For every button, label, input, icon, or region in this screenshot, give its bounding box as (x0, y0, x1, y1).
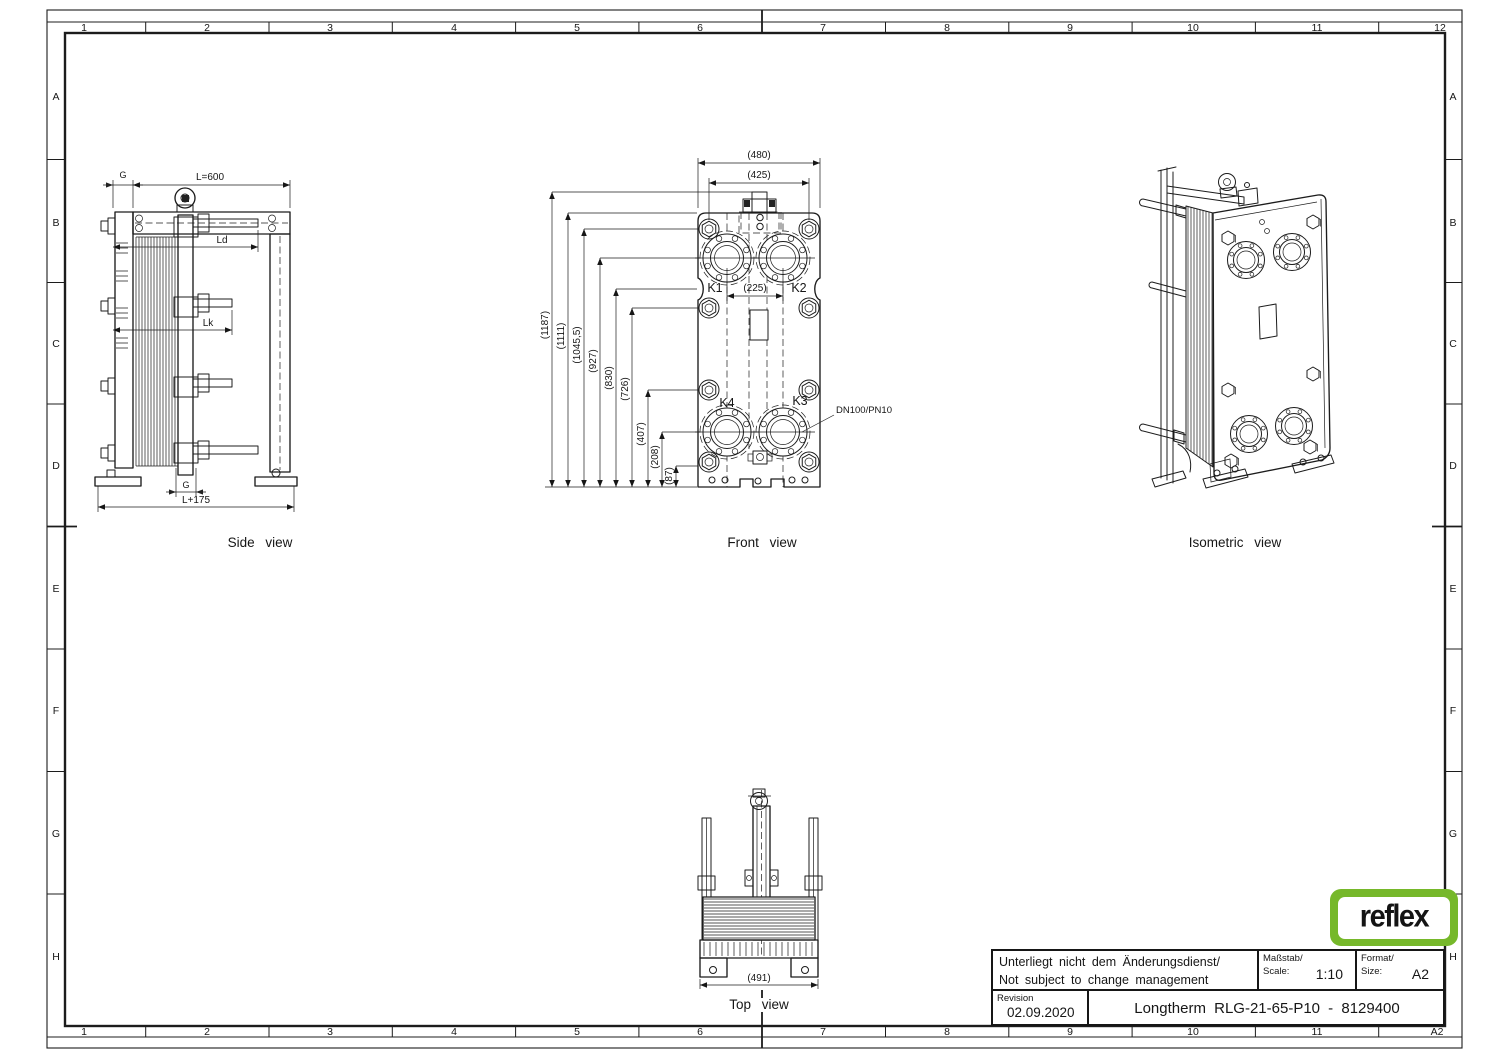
dim-label-726: (726) (620, 377, 631, 400)
top-view-dimensions: (491) (700, 973, 818, 989)
drawing-canvas: 1 2 3 4 5 6 7 8 9 10 11 12 1 2 3 4 5 6 7… (0, 0, 1500, 1060)
grid-col-label: 2 (204, 22, 210, 34)
format-label-de: Format/ (1357, 951, 1445, 964)
nozzle-spec-label: DN100/PN10 (836, 405, 892, 416)
sheet-border-frame (47, 10, 1462, 1048)
grid-col-label: 8 (944, 22, 950, 34)
dim-label-830: (830) (604, 366, 615, 389)
grid-col-label: 3 (327, 22, 333, 34)
reflex-logo-text: reflex (1360, 900, 1428, 936)
dim-label-lk: Lk (203, 318, 215, 329)
grid-col-label: 2 (204, 1026, 210, 1038)
isometric-view-drawing: Isometric view (1140, 167, 1335, 550)
grid-row-label: E (1449, 583, 1456, 595)
grid-row-label: B (52, 217, 59, 229)
dim-label-1111: (1111) (556, 323, 567, 350)
grid-row-label: A (52, 91, 59, 103)
dim-label-491: (491) (747, 973, 770, 984)
scale-value: 1:10 (1316, 966, 1343, 982)
dim-label-1187: (1187) (540, 311, 551, 339)
drawing-sheet: 1 2 3 4 5 6 7 8 9 10 11 12 1 2 3 4 5 6 7… (0, 0, 1500, 1060)
grid-row-label: B (1449, 217, 1456, 229)
grid-row-label: G (52, 828, 60, 840)
dim-label-overall: L+175 (182, 495, 211, 506)
dim-label-1045: (1045,5) (572, 326, 583, 363)
grid-row-label: G (1449, 828, 1457, 840)
grid-col-label: 10 (1187, 1026, 1199, 1038)
grid-col-label: 4 (451, 1026, 457, 1038)
grid-col-label: 8 (944, 1026, 950, 1038)
format-label-en: Size: (1357, 964, 1445, 977)
grid-col-label: A2 (1431, 1026, 1444, 1038)
side-view-dimensions: G L=600 Ld Lk G L+175 (98, 170, 294, 512)
grid-col-label: 6 (697, 1026, 703, 1038)
title-block-note: Unterliegt nicht dem Änderungsdienst/ No… (993, 951, 1259, 991)
title-block-revision-cell: Revision 02.09.2020 (993, 991, 1089, 1026)
side-view-drawing: G L=600 Ld Lk G L+175 Side view (95, 170, 297, 550)
grid-col-label: 3 (327, 1026, 333, 1038)
grid-col-label: 11 (1312, 1026, 1323, 1038)
format-value: A2 (1412, 966, 1429, 982)
grid-row-label: D (52, 460, 60, 472)
grid-col-label: 7 (820, 22, 826, 34)
grid-col-label: 9 (1067, 22, 1073, 34)
dim-label-87: (87) (664, 467, 675, 485)
dim-label-927: (927) (588, 349, 599, 372)
grid-col-label: 1 (81, 1026, 87, 1038)
grid-row-label: F (1450, 705, 1456, 717)
grid-col-label: 1 (81, 22, 87, 34)
title-block-format-cell: Format/ Size: A2 (1357, 951, 1445, 991)
front-view-drawing: K1 K2 K4 K3 DN100/PN10 (480) (425) (225) (540, 150, 892, 550)
grid-row-label: H (52, 951, 60, 963)
isometric-view-label: Isometric view (1189, 535, 1282, 550)
grid-row-label: F (53, 705, 59, 717)
title-block: Unterliegt nicht dem Änderungsdienst/ No… (991, 949, 1445, 1026)
dim-label-480: (480) (747, 150, 770, 161)
grid-row-label: C (52, 338, 60, 350)
reflex-logo-inner: reflex (1338, 897, 1450, 939)
grid-col-label: 6 (697, 22, 703, 34)
revision-label: Revision (993, 991, 1087, 1004)
title-block-scale-cell: Maßstab/ Scale: 1:10 (1259, 951, 1357, 991)
grid-col-label: 4 (451, 22, 457, 34)
grid-row-label: E (52, 583, 59, 595)
grid-col-label: 9 (1067, 1026, 1073, 1038)
grid-row-label: C (1449, 338, 1457, 350)
dim-label-ld: Ld (216, 235, 227, 246)
scale-label-de: Maßstab/ (1259, 951, 1355, 964)
top-view-drawing: (491) Top view (698, 789, 822, 1012)
dim-label-225: (225) (743, 283, 766, 294)
grid-col-label: 11 (1312, 22, 1323, 34)
dim-label-g-bottom: G (182, 480, 189, 490)
port-label-k2: K2 (791, 281, 806, 295)
dim-label-g-top: G (119, 170, 126, 180)
dim-label-length: L=600 (196, 172, 225, 183)
side-view-label: Side view (228, 535, 293, 550)
note-line-2: Not subject to change management (999, 973, 1208, 987)
revision-date: 02.09.2020 (1007, 1005, 1075, 1020)
drawing-title: Longtherm RLG-21-65-P10 - 8129400 (1089, 991, 1445, 1026)
port-label-k1: K1 (707, 281, 722, 295)
dim-label-425: (425) (747, 170, 770, 181)
grid-row-label: D (1449, 460, 1457, 472)
grid-row-label: A (1449, 91, 1456, 103)
grid-row-label: H (1449, 951, 1457, 963)
grid-col-label: 12 (1434, 22, 1446, 34)
front-view-label: Front view (727, 535, 797, 550)
reflex-logo: reflex (1330, 889, 1458, 946)
top-view-label: Top view (729, 997, 789, 1012)
grid-col-label: 10 (1187, 22, 1199, 34)
dim-label-407: (407) (636, 422, 647, 445)
grid-col-label: 7 (820, 1026, 826, 1038)
grid-col-label: 5 (574, 22, 580, 34)
note-line-1: Unterliegt nicht dem Änderungsdienst/ (999, 955, 1220, 969)
dim-label-208: (208) (650, 445, 661, 468)
port-label-k3: K3 (792, 394, 807, 408)
port-label-k4: K4 (719, 396, 734, 410)
grid-col-label: 5 (574, 1026, 580, 1038)
